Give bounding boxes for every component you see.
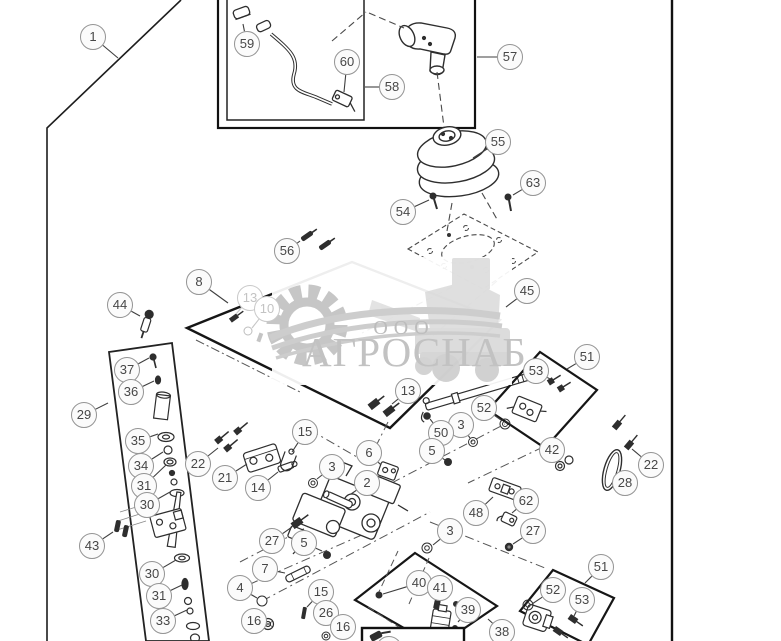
- callout-42: 42: [539, 437, 565, 463]
- callout-10: 10: [254, 296, 280, 322]
- callout-56: 56: [274, 238, 300, 264]
- callout-15: 15: [292, 419, 318, 445]
- callout-5: 5: [291, 530, 317, 556]
- callout-22: 22: [638, 452, 664, 478]
- callout-45: 45: [514, 278, 540, 304]
- callout-58: 58: [379, 74, 405, 100]
- callout-38: 38: [489, 619, 515, 641]
- callout-48: 48: [463, 500, 489, 526]
- callout-3: 3: [437, 518, 463, 544]
- callout-7: 7: [252, 556, 278, 582]
- callout-22: 22: [185, 451, 211, 477]
- callout-14: 14: [245, 475, 271, 501]
- callout-41: 41: [427, 575, 453, 601]
- callout-57: 57: [497, 44, 523, 70]
- callout-53: 53: [569, 587, 595, 613]
- callout-54: 54: [390, 199, 416, 225]
- callout-3: 3: [319, 454, 345, 480]
- callout-52: 52: [471, 395, 497, 421]
- callout-2: 2: [354, 470, 380, 496]
- callout-36: 36: [118, 379, 144, 405]
- callout-29: 29: [71, 402, 97, 428]
- callout-8: 8: [186, 269, 212, 295]
- callout-62: 62: [513, 488, 539, 514]
- callout-hidden: [376, 636, 402, 641]
- callout-51: 51: [588, 554, 614, 580]
- callout-51: 51: [574, 344, 600, 370]
- callout-59: 59: [234, 31, 260, 57]
- callout-39: 39: [455, 597, 481, 623]
- parts-diagram-canvas: ООО АГРОСНАБ 159605857556354455681310442…: [0, 0, 781, 641]
- callout-60: 60: [334, 49, 360, 75]
- callout-31: 31: [146, 583, 172, 609]
- callout-43: 43: [79, 533, 105, 559]
- callout-balloons: 1596058575563544556813104429373635343130…: [0, 0, 781, 641]
- callout-16: 16: [330, 614, 356, 640]
- callout-6: 6: [356, 440, 382, 466]
- callout-21: 21: [212, 465, 238, 491]
- callout-33: 33: [150, 608, 176, 634]
- callout-53: 53: [523, 358, 549, 384]
- callout-63: 63: [520, 170, 546, 196]
- callout-35: 35: [125, 428, 151, 454]
- callout-55: 55: [485, 129, 511, 155]
- callout-27: 27: [259, 528, 285, 554]
- callout-52: 52: [540, 577, 566, 603]
- callout-27: 27: [520, 518, 546, 544]
- callout-13: 13: [395, 378, 421, 404]
- callout-4: 4: [227, 575, 253, 601]
- callout-16: 16: [241, 608, 267, 634]
- callout-5: 5: [419, 438, 445, 464]
- callout-1: 1: [80, 24, 106, 50]
- callout-30: 30: [134, 492, 160, 518]
- callout-28: 28: [612, 470, 638, 496]
- callout-44: 44: [107, 292, 133, 318]
